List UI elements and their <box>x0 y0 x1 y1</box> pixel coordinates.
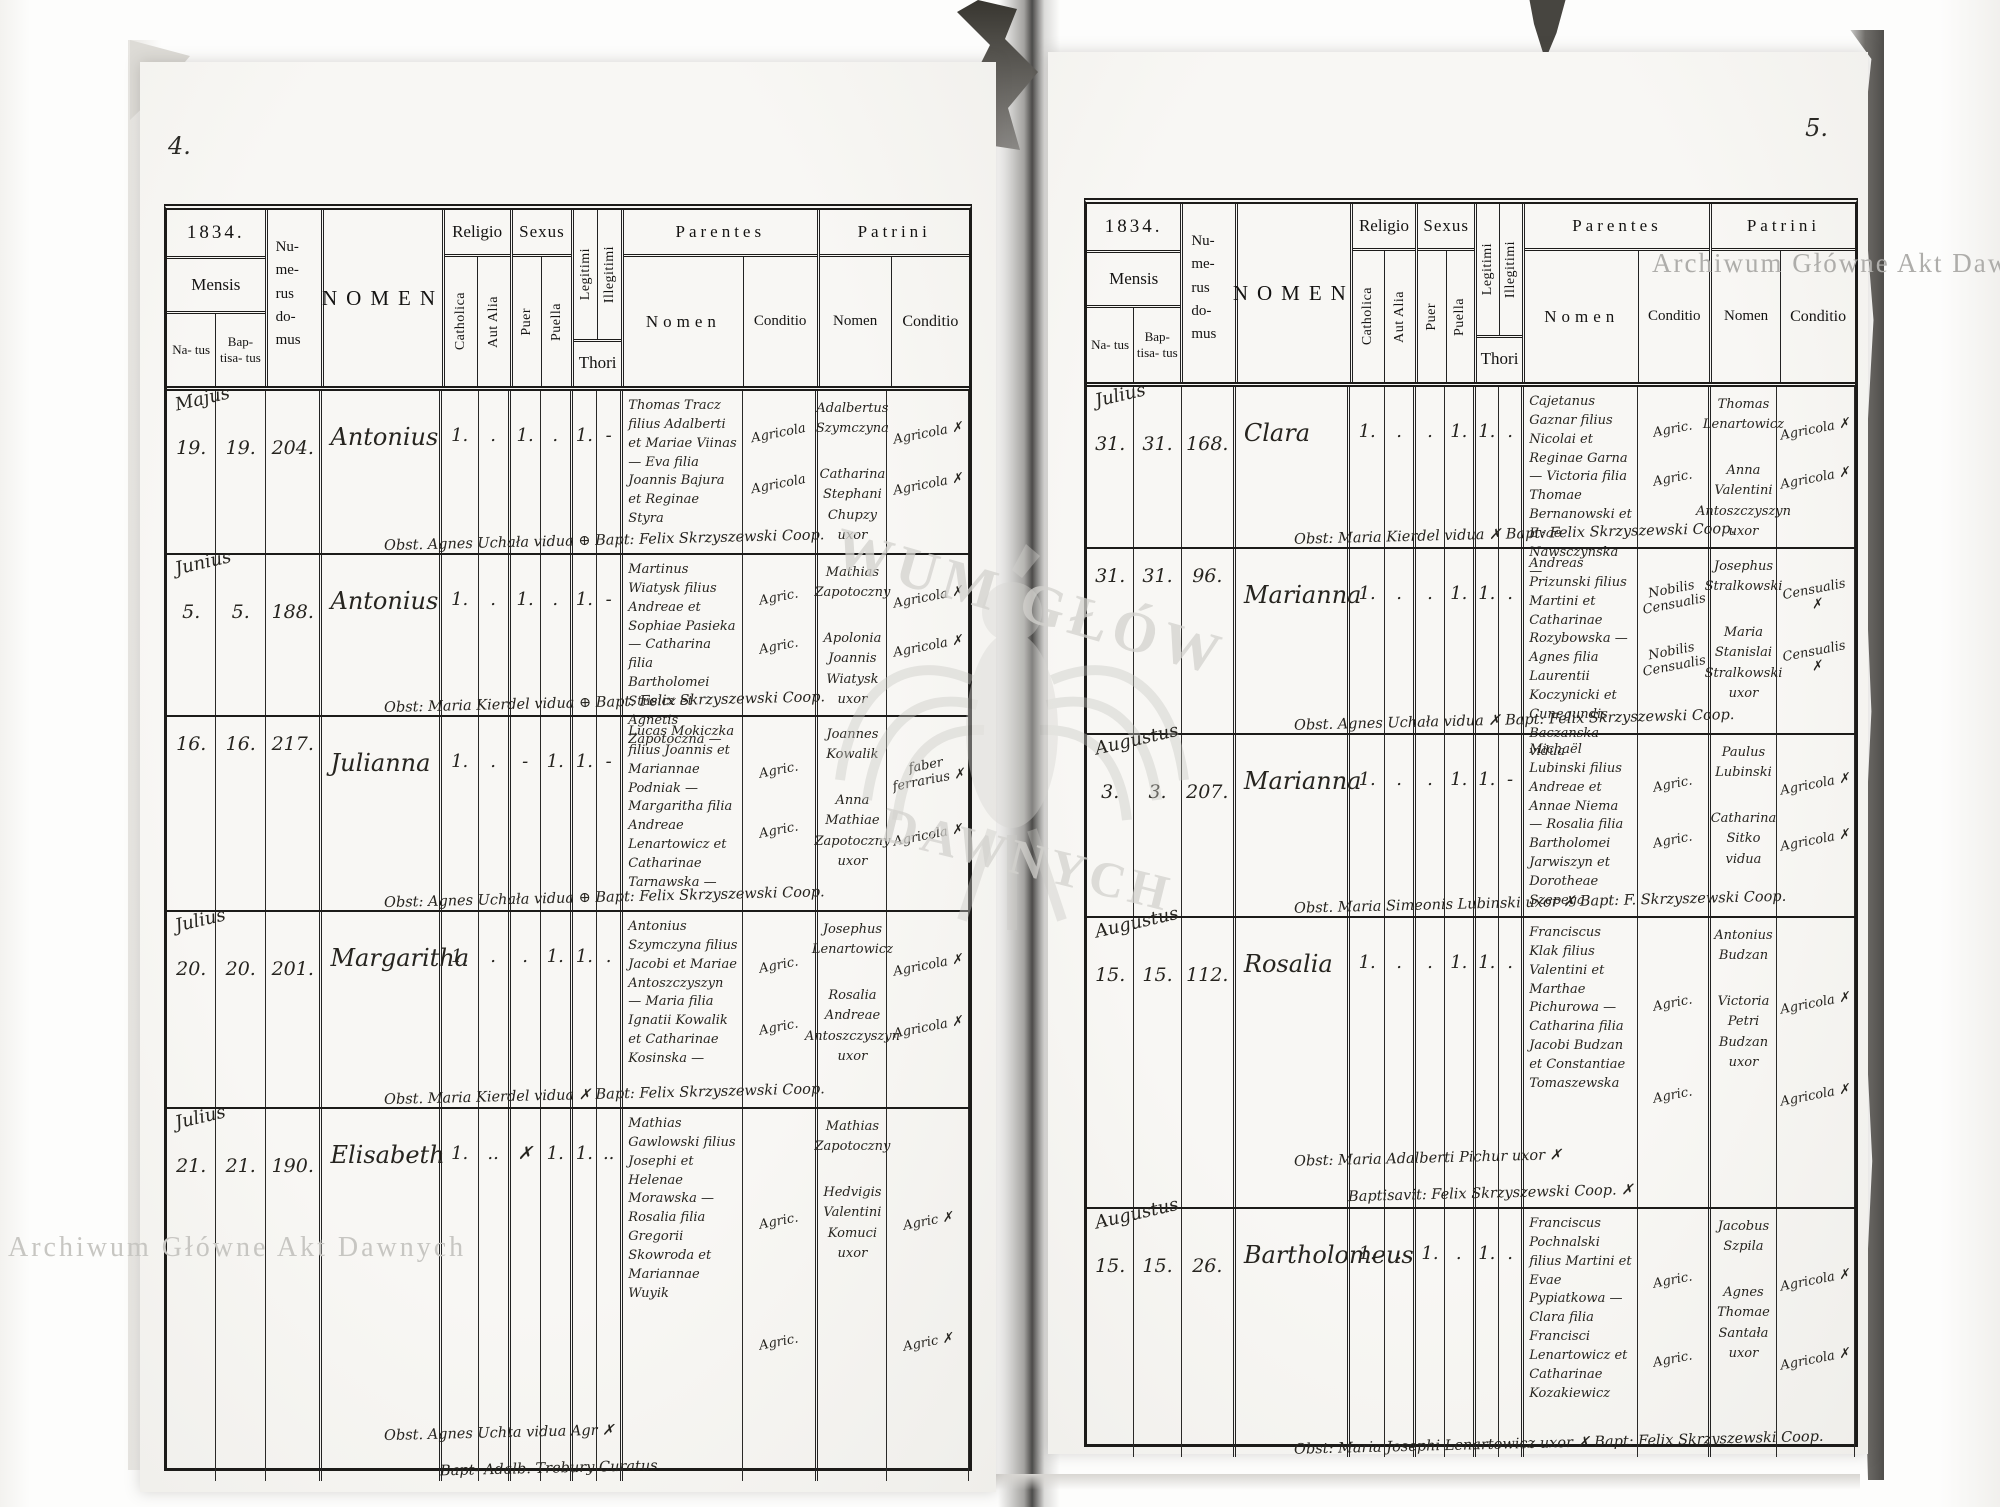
natus-value: 15. <box>1095 964 1125 986</box>
cell-aut-alia: . <box>1385 735 1416 916</box>
patrini-godmother-name: Maria Stanislai Stralkowski uxor <box>1703 623 1785 704</box>
cell-puella-value: 1. <box>547 751 564 772</box>
natus-value: 19. <box>176 437 206 459</box>
cell-parentes-nomen: Franciscus Pochnalski filius Martini et … <box>1524 1209 1638 1457</box>
header-patrini-nomen: Nomen <box>1712 251 1781 382</box>
cell-baptisatus: 3. <box>1134 735 1181 916</box>
natus-value: 5. <box>182 601 200 623</box>
parentes-names-value: Franciscus Pochnalski filius Martini et … <box>1524 1209 1637 1405</box>
cell-numerus-domus: 112. <box>1182 918 1236 1207</box>
header-patrini-conditio: Conditio <box>892 257 969 386</box>
patrini-godfather-name: Josephus Lenartowicz <box>810 920 895 960</box>
cell-aut-alia-value: . <box>1396 1243 1402 1264</box>
header-catholica: Catholica <box>1353 251 1385 382</box>
cell-catholica: 1. <box>1350 549 1385 733</box>
cell-puer: . <box>511 912 541 1107</box>
patrini-conditio-godfather: faber ferrarius ✗ <box>885 750 970 795</box>
patrini-conditio-godfather: Censualis ✗ <box>1775 575 1856 619</box>
numerus-domus-value: 26. <box>1192 1255 1222 1277</box>
natus-value: 16. <box>176 733 206 755</box>
cell-catholica: 1. <box>1350 1209 1385 1457</box>
cell-illegitimi-value: - <box>1507 769 1513 790</box>
header-puella: Puella <box>1447 251 1475 382</box>
cell-natus: 15. <box>1087 1209 1134 1457</box>
cell-puella-value: . <box>1456 1243 1462 1264</box>
header-numerus-domus: Nu- me- rus do- mus <box>1183 204 1235 382</box>
parentes-conditio-father: Agric. <box>758 759 800 781</box>
child-name-value: Elisabeth <box>322 1141 444 1169</box>
cell-parentes-nomen: Andreas Prizunski filius Martini et Cath… <box>1524 549 1638 733</box>
cell-puella: . <box>541 555 573 715</box>
header-sexus: Sexus <box>513 210 572 257</box>
header-group-mensis: 1834.MensisNa- tusBap- tisa- tus <box>167 210 268 386</box>
patrini-conditio-godmother: Agric ✗ <box>902 1330 954 1354</box>
patrini-conditio-godfather: Agricola ✗ <box>1780 415 1852 443</box>
patrini-conditio-godfather: Agricola ✗ <box>892 420 964 448</box>
record-row: Augustus15.15.112.Rosalia1...1.1..Franci… <box>1087 916 1855 1207</box>
cell-puella: 1. <box>541 717 573 910</box>
cell-aut-alia-value: . <box>490 589 496 610</box>
cell-parentes-nomen: Antonius Szymczyna filius Jacobi et Mari… <box>623 912 742 1107</box>
cell-illegitimi: . <box>1499 549 1524 733</box>
cell-puella: 1. <box>1445 549 1476 733</box>
parentes-conditio-mother: Agricola <box>751 472 808 497</box>
header-thori: Thori <box>1477 335 1522 382</box>
header-puer-label: Puer <box>1424 303 1440 331</box>
record-row: 31.31.96.Marianna1...1.1..Andreas Prizun… <box>1087 547 1855 733</box>
cell-nomen: Julianna <box>322 717 441 910</box>
parentes-conditio-mother: Agric. <box>758 1016 800 1038</box>
record-row: Augustus3.3.207.Marianna1...1.1.-Michaël… <box>1087 733 1855 916</box>
header-legitimi: Legitimi <box>574 210 598 339</box>
patrini-godmother-name: Agnes Thomae Santała uxor <box>1711 1283 1776 1364</box>
header-sexus: Sexus <box>1418 204 1474 251</box>
patrini-conditio-godfather: Agricola ✗ <box>1780 1266 1852 1294</box>
cell-aut-alia: . <box>479 912 511 1107</box>
header-year: 1834. <box>167 210 265 259</box>
cell-catholica-value: 1. <box>451 946 468 967</box>
cell-puer-value: . <box>1427 583 1433 604</box>
parentes-names-value: Mathias Gawlowski filius Josephi et Hele… <box>623 1109 741 1305</box>
cell-aut-alia: . <box>1385 1209 1416 1457</box>
header-legitimi-label: Legitimi <box>578 248 594 300</box>
header-religio-subrow: CatholicaAut Alia <box>1353 251 1415 382</box>
parentes-conditio-father: Agric. <box>1652 773 1694 795</box>
header-parentes-conditio: Conditio <box>744 257 817 386</box>
page-number: 4. <box>168 132 191 160</box>
patrini-godfather-name: Joannes Kowalik <box>818 725 886 765</box>
header-catholica-label: Catholica <box>453 292 469 350</box>
parentes-conditio-father: Agric. <box>758 586 800 608</box>
header-legitimi-label: Legitimi <box>1480 243 1496 295</box>
cell-aut-alia-value: . <box>490 425 496 446</box>
cell-parentes-nomen: Lucas Mokiczka filius Joannis et Mariann… <box>623 717 742 910</box>
cell-legitimi: 1. <box>573 555 597 715</box>
cell-numerus-domus: 168. <box>1182 387 1236 547</box>
header-illegitimi: Illegitimi <box>598 210 621 339</box>
parentes-conditio-mother: Nobilis Censualis <box>1636 638 1710 681</box>
header-group-parentes: ParentesNomenConditio <box>624 210 819 386</box>
cell-illegitimi-value: . <box>1507 952 1513 973</box>
cell-legitimi-value: 1. <box>1478 952 1495 973</box>
cell-parentes-nomen: Thomas Tracz filius Adalberti et Mariae … <box>623 391 742 553</box>
cell-puella: . <box>1445 1209 1476 1457</box>
cell-puella: 1. <box>1445 735 1476 916</box>
cell-puella: . <box>541 391 573 553</box>
parentes-names-value: Andreas Prizunski filius Martini et Cath… <box>1524 549 1637 764</box>
cell-puella-value: . <box>552 589 558 610</box>
header-parentes-subrow: NomenConditio <box>624 257 816 386</box>
baptisatus-value: 5. <box>232 601 250 623</box>
header-group-religio: ReligioCatholicaAut Alia <box>1353 204 1418 382</box>
header-patrini-subrow: NomenConditio <box>820 257 970 386</box>
register-table: 1834.MensisNa- tusBap- tisa- tusNu- me- … <box>1084 198 1858 1447</box>
cell-aut-alia-value: . <box>1396 421 1402 442</box>
cell-numerus-domus: 207. <box>1182 735 1236 916</box>
cell-illegitimi: . <box>1499 387 1524 547</box>
patrini-conditio-godmother: Agricola ✗ <box>892 1013 964 1041</box>
baptisatus-value: 16. <box>226 733 256 755</box>
record-row: Julius20.20.201.Margaritha1...1.1..Anton… <box>167 910 969 1107</box>
cell-aut-alia-value: . <box>1396 769 1402 790</box>
patrini-conditio-godmother: Agricola ✗ <box>892 470 964 498</box>
cell-illegitimi-value: - <box>606 589 612 610</box>
child-name-value: Marianna <box>1236 767 1362 795</box>
cell-numerus-domus: 26. <box>1182 1209 1236 1457</box>
cell-parentes-nomen: Michaël Lubinski filius Andreae et Annae… <box>1524 735 1638 916</box>
cell-catholica: 1. <box>1350 735 1385 916</box>
numerus-domus-value: 207. <box>1186 781 1228 803</box>
cell-baptisatus: 21. <box>216 1109 265 1481</box>
header-puella: Puella <box>542 257 571 386</box>
cell-patrini-nomen: Antonius BudzanVictoria Petri Budzan uxo… <box>1711 918 1777 1207</box>
record-row: Junius5.5.188.Antonius1..1..1.-Martinus … <box>167 553 969 715</box>
cell-catholica-value: 1. <box>1359 421 1376 442</box>
cell-natus: 20. <box>167 912 216 1107</box>
header-group-mensis: 1834.MensisNa- tusBap- tisa- tus <box>1087 204 1183 382</box>
header-aut-alia-label: Aut Alia <box>486 296 502 348</box>
header-thori: Thori <box>574 339 621 386</box>
header-aut-alia-label: Aut Alia <box>1392 291 1408 343</box>
parentes-conditio-mother: Agric. <box>1652 468 1694 490</box>
child-name-value: Marianna <box>1236 581 1362 609</box>
cell-catholica: 1. <box>442 391 479 553</box>
header-group-numerus: Nu- me- rus do- mus <box>268 210 325 386</box>
cell-baptisatus: 31. <box>1134 549 1181 733</box>
cell-illegitimi-value: . <box>606 946 612 967</box>
baptisatus-value: 15. <box>1142 964 1172 986</box>
patrini-conditio-godmother: Agricola ✗ <box>892 822 964 850</box>
cell-catholica-value: 1. <box>451 751 468 772</box>
header-year: 1834. <box>1087 204 1180 253</box>
record-row: Julius31.31.168.Clara1...1.1..Cajetanus … <box>1087 387 1855 547</box>
cell-catholica: 1. <box>442 912 479 1107</box>
patrini-conditio-godmother: Agricola ✗ <box>1780 1082 1852 1110</box>
cell-patrini-nomen: Josephus LenartowiczRosalia Andreae Anto… <box>818 912 887 1107</box>
patrini-conditio-godfather: Agricola ✗ <box>892 583 964 611</box>
cell-puer: 1. <box>511 555 541 715</box>
header-baptisatus: Bap- tisa- tus <box>216 314 264 386</box>
cell-illegitimi: . <box>597 912 623 1107</box>
cell-baptisatus: 15. <box>1134 918 1181 1207</box>
page-number: 5. <box>1805 114 1828 142</box>
patrini-conditio-godmother: Agricola ✗ <box>1780 827 1852 855</box>
header-group-thori: LegitimiIllegitimiThori <box>1477 204 1525 382</box>
cell-parentes-conditio: Agric.Agric. <box>1638 918 1711 1207</box>
header-catholica: Catholica <box>445 257 478 386</box>
patrini-godmother-name: Victoria Petri Budzan uxor <box>1711 992 1776 1073</box>
patrini-godmother-name: Hedvigis Valentini Komuci uxor <box>818 1183 886 1264</box>
cell-puer-value: 1. <box>1421 1243 1438 1264</box>
header-puella-label: Puella <box>549 303 565 341</box>
register-table: 1834.MensisNa- tusBap- tisa- tusNu- me- … <box>164 204 972 1471</box>
patrini-godfather-name: Mathias Zapotoczny <box>813 563 893 603</box>
header-group-religio: ReligioCatholicaAut Alia <box>445 210 513 386</box>
baptisatus-value: 3. <box>1148 781 1166 803</box>
patrini-godfather-name: Thomas Lenartowicz <box>1701 395 1786 435</box>
cell-aut-alia-value: . <box>490 751 496 772</box>
parentes-conditio-mother: Agric. <box>758 636 800 658</box>
cell-nomen: Antonius <box>322 555 441 715</box>
patrini-godfather-name: Mathias Zapotoczny <box>813 1117 893 1157</box>
cell-legitimi-value: 1. <box>576 425 593 446</box>
patrini-godfather-name: Adalbertus Szymczyna <box>814 399 891 439</box>
cell-natus: 19. <box>167 391 216 553</box>
cell-legitimi: 1. <box>573 912 597 1107</box>
header-puer-label: Puer <box>519 308 535 336</box>
parentes-conditio-mother: Agric. <box>1652 830 1694 852</box>
header-parentes: Parentes <box>1525 204 1709 251</box>
cell-catholica: 1. <box>1350 387 1385 547</box>
cell-parentes-conditio: Agric.Agric. <box>1638 1209 1711 1457</box>
cell-puer-value: ✗ <box>518 1143 533 1164</box>
cell-patrini-nomen: Joannes KowalikAnna Mathiae Zapotoczny u… <box>818 717 887 910</box>
cell-natus: 31. <box>1087 549 1134 733</box>
header-parentes-conditio: Conditio <box>1639 251 1709 382</box>
record-row: 16.16.217.Julianna1..-1.1.-Lucas Mokiczk… <box>167 715 969 910</box>
cell-puer: . <box>1416 387 1445 547</box>
child-name-value: Clara <box>1236 419 1310 447</box>
child-name-value: Antonius <box>322 587 438 615</box>
record-row: Majus19.19.204.Antonius1..1..1.-Thomas T… <box>167 391 969 553</box>
baptisatus-value: 20. <box>226 958 256 980</box>
patrini-conditio-godmother: Agricola ✗ <box>1780 465 1852 493</box>
patrini-conditio-godmother: Agricola ✗ <box>1780 1345 1852 1373</box>
parentes-conditio-father: Agric. <box>1652 1269 1694 1291</box>
header-group-patrini: PatriniNomenConditio <box>820 210 970 386</box>
cell-illegitimi: - <box>597 391 623 553</box>
cell-patrini-nomen: Jacobus SzpilaAgnes Thomae Santała uxor <box>1711 1209 1777 1457</box>
cell-patrini-conditio: Agricola ✗Agricola ✗ <box>1777 918 1855 1207</box>
cell-natus: 16. <box>167 717 216 910</box>
cell-puella: 1. <box>1445 387 1476 547</box>
cell-puella-value: 1. <box>1450 421 1467 442</box>
cell-legitimi-value: 1. <box>1478 1243 1495 1264</box>
cell-numerus-domus: 190. <box>266 1109 323 1481</box>
cell-illegitimi-value: . <box>1507 421 1513 442</box>
cell-legitimi-value: 1. <box>1478 583 1495 604</box>
header-thori-subrow: LegitimiIllegitimi <box>574 210 621 339</box>
parentes-conditio-father: Agricola <box>751 421 808 446</box>
cell-legitimi: 1. <box>1476 549 1499 733</box>
parentes-conditio-father: Agric. <box>758 1211 800 1233</box>
child-name-value: Julianna <box>322 749 430 777</box>
header-numerus-domus: Nu- me- rus do- mus <box>268 210 322 386</box>
parentes-conditio-mother: Agric. <box>758 1331 800 1353</box>
header-parentes: Parentes <box>624 210 816 257</box>
cell-legitimi: 1. <box>573 717 597 910</box>
cell-puer: . <box>1416 735 1445 916</box>
header-patrini: Patrini <box>1712 204 1855 251</box>
cell-nomen: Margaritha <box>322 912 441 1107</box>
header-sexus-subrow: PuerPuella <box>513 257 572 386</box>
cell-illegitimi: - <box>1499 735 1524 916</box>
natus-value: 20. <box>176 958 206 980</box>
cell-puer-value: - <box>522 751 528 772</box>
header-aut-alia: Aut Alia <box>478 257 510 386</box>
cell-aut-alia-value: . <box>1396 952 1402 973</box>
numerus-domus-value: 168. <box>1186 433 1228 455</box>
header-illegitimi: Illegitimi <box>1500 204 1522 335</box>
scan-artifact-torn-paper-top-right <box>1525 0 1570 60</box>
cell-puer: 1. <box>1416 1209 1445 1457</box>
cell-puella: 1. <box>541 912 573 1107</box>
patrini-conditio-godfather: Agricola ✗ <box>1780 770 1852 798</box>
numerus-domus-value: 188. <box>272 601 314 623</box>
cell-aut-alia: . <box>479 391 511 553</box>
header-religio: Religio <box>1353 204 1415 251</box>
cell-legitimi-value: 1. <box>576 589 593 610</box>
cell-catholica-value: 1. <box>1359 583 1376 604</box>
record-row: Augustus15.15.26.Bartholomeus1..1..1..Fr… <box>1087 1207 1855 1457</box>
cell-catholica-value: 1. <box>451 425 468 446</box>
cell-puella-value: 1. <box>547 1143 564 1164</box>
header-mensis-subrow: Na- tusBap- tisa- tus <box>1087 308 1180 382</box>
cell-patrini-conditio: Agricola ✗Agricola ✗ <box>1777 1209 1855 1457</box>
cell-legitimi: 1. <box>1476 1209 1499 1457</box>
register-page: 5.1834.MensisNa- tusBap- tisa- tusNu- me… <box>1048 52 1868 1454</box>
parentes-conditio-father: Agric. <box>758 955 800 977</box>
cell-aut-alia: . <box>1385 549 1416 733</box>
cell-illegitimi-value: - <box>606 425 612 446</box>
header-puer: Puer <box>1418 251 1447 382</box>
patrini-godfather-name: Paulus Lubinski <box>1711 743 1776 783</box>
cell-catholica: 1. <box>442 717 479 910</box>
cell-puella-value: 1. <box>547 946 564 967</box>
cell-natus: 15. <box>1087 918 1134 1207</box>
cell-aut-alia-value: . <box>490 946 496 967</box>
patrini-godfather-name: Jacobus Szpila <box>1711 1217 1776 1257</box>
cell-puella-value: 1. <box>1450 583 1467 604</box>
header-catholica-label: Catholica <box>1360 287 1376 345</box>
table-header: 1834.MensisNa- tusBap- tisa- tusNu- me- … <box>1087 204 1855 387</box>
header-legitimi: Legitimi <box>1477 204 1500 335</box>
scanned-register-spread: 4.1834.MensisNa- tusBap- tisa- tusNu- me… <box>0 0 2000 1507</box>
numerus-domus-value: 201. <box>272 958 314 980</box>
header-natus: Na- tus <box>1087 308 1134 382</box>
cell-nomen: Elisabeth <box>322 1109 441 1481</box>
patrini-godmother-name: Catharina Sitko vidua <box>1709 809 1779 869</box>
baptisatus-value: 19. <box>226 437 256 459</box>
cell-illegitimi: - <box>597 555 623 715</box>
cell-puer-value: 1. <box>517 589 534 610</box>
cell-illegitimi-value: - <box>606 751 612 772</box>
cell-aut-alia: . <box>1385 387 1416 547</box>
cell-legitimi: 1. <box>1476 735 1499 916</box>
parentes-conditio-mother: Agric. <box>1652 1348 1694 1370</box>
table-body: Majus19.19.204.Antonius1..1..1.-Thomas T… <box>167 391 969 1481</box>
header-baptisatus: Bap- tisa- tus <box>1134 308 1180 382</box>
cell-natus: 21. <box>167 1109 216 1481</box>
header-religio: Religio <box>445 210 510 257</box>
cell-aut-alia: . <box>479 555 511 715</box>
cell-puella-value: 1. <box>1450 769 1467 790</box>
header-aut-alia: Aut Alia <box>1385 251 1416 382</box>
cell-parentes-conditio: Agric.Agric. <box>743 717 819 910</box>
numerus-domus-value: 204. <box>272 437 314 459</box>
parentes-names-value: Thomas Tracz filius Adalberti et Mariae … <box>623 391 741 531</box>
header-thori-subrow: LegitimiIllegitimi <box>1477 204 1522 335</box>
cell-puella-value: 1. <box>1450 952 1467 973</box>
cell-aut-alia-value: . <box>1396 583 1402 604</box>
cell-aut-alia: . <box>479 717 511 910</box>
cell-puer-value: . <box>1427 952 1433 973</box>
header-nomen: NOMEN <box>1238 204 1350 382</box>
header-patrini-subrow: NomenConditio <box>1712 251 1855 382</box>
cell-illegitimi: . <box>1499 1209 1524 1457</box>
header-patrini-nomen: Nomen <box>820 257 892 386</box>
header-group-nomen: NOMEN <box>324 210 444 386</box>
cell-legitimi: 1. <box>1476 387 1499 547</box>
cell-puer-value: . <box>522 946 528 967</box>
header-patrini: Patrini <box>820 210 970 257</box>
cell-baptisatus: 5. <box>216 555 265 715</box>
header-religio-subrow: CatholicaAut Alia <box>445 257 510 386</box>
cell-catholica-value: 1. <box>1359 952 1376 973</box>
cell-natus: 5. <box>167 555 216 715</box>
cell-natus: 31. <box>1087 387 1134 547</box>
cell-catholica: 1. <box>442 555 479 715</box>
header-mensis: Mensis <box>1087 253 1180 308</box>
header-group-nomen: NOMEN <box>1238 204 1353 382</box>
cell-numerus-domus: 188. <box>266 555 323 715</box>
header-group-numerus: Nu- me- rus do- mus <box>1183 204 1238 382</box>
cell-legitimi-value: 1. <box>576 1143 593 1164</box>
header-illegitimi-label: Illegitimi <box>602 246 618 303</box>
cell-baptisatus: 20. <box>216 912 265 1107</box>
cell-legitimi-value: 1. <box>1478 769 1495 790</box>
cell-puer-value: . <box>1427 421 1433 442</box>
record-row: Julius21.21.190.Elisabeth1...✗1.1...Math… <box>167 1107 969 1481</box>
patrini-conditio-godfather: Agricola ✗ <box>892 952 964 980</box>
parentes-conditio-mother: Agric. <box>1652 1085 1694 1107</box>
cell-baptisatus: 31. <box>1134 387 1181 547</box>
patrini-godfather-name: Josephus Stralkowski <box>1703 557 1785 597</box>
cell-illegitimi: - <box>597 717 623 910</box>
header-group-sexus: SexusPuerPuella <box>1418 204 1477 382</box>
parentes-names-value: Lucas Mokiczka filius Joannis et Mariann… <box>623 717 741 895</box>
cell-puer-value: 1. <box>517 425 534 446</box>
numerus-domus-value: 190. <box>272 1155 314 1177</box>
header-parentes-subrow: NomenConditio <box>1525 251 1709 382</box>
cell-natus: 3. <box>1087 735 1134 916</box>
cell-puella-value: . <box>552 425 558 446</box>
cell-catholica-value: 1. <box>451 1143 468 1164</box>
header-nomen: NOMEN <box>324 210 441 386</box>
header-illegitimi-label: Illegitimi <box>1503 241 1519 298</box>
cell-puer: - <box>511 717 541 910</box>
patrini-godfather-name: Antonius Budzan <box>1711 926 1776 966</box>
